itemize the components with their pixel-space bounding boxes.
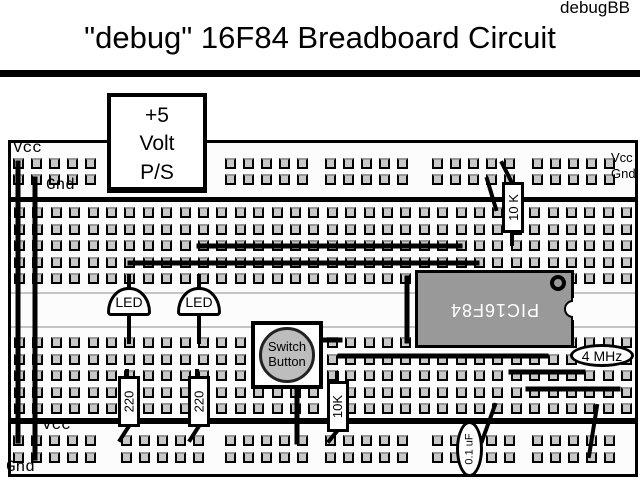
breadboard-hole bbox=[382, 354, 393, 365]
breadboard-hole bbox=[327, 257, 338, 268]
breadboard-hole bbox=[400, 240, 411, 251]
breadboard-hole bbox=[272, 240, 283, 251]
breadboard-hole bbox=[85, 435, 96, 446]
breadboard-hole bbox=[225, 174, 236, 185]
breadboard-hole bbox=[504, 452, 515, 463]
breadboard-hole bbox=[400, 207, 411, 218]
breadboard-hole bbox=[419, 224, 430, 235]
breadboard-hole bbox=[143, 354, 154, 365]
breadboard-hole bbox=[51, 337, 62, 348]
power-supply-box: +5 Volt P/S bbox=[107, 93, 207, 193]
breadboard-hole bbox=[139, 452, 150, 463]
gnd-label-top-left: Gnd bbox=[46, 176, 75, 194]
led-right-label: LED bbox=[185, 294, 212, 310]
breadboard-hole bbox=[14, 337, 25, 348]
breadboard-hole bbox=[397, 435, 408, 446]
breadboard-hole bbox=[364, 224, 375, 235]
breadboard-hole bbox=[69, 240, 80, 251]
breadboard-hole bbox=[548, 224, 559, 235]
breadboard-hole bbox=[382, 370, 393, 381]
breadboard-hole bbox=[345, 337, 356, 348]
breadboard-hole bbox=[548, 207, 559, 218]
breadboard-hole bbox=[51, 224, 62, 235]
breadboard-hole bbox=[343, 435, 354, 446]
breadboard-hole bbox=[235, 207, 246, 218]
corner-label: debugBB bbox=[560, 0, 630, 18]
page: debugBB "debug" 16F84 Breadboard Circuit… bbox=[0, 0, 640, 480]
breadboard-hole bbox=[364, 403, 375, 414]
breadboard-hole bbox=[32, 207, 43, 218]
breadboard-hole bbox=[400, 354, 411, 365]
breadboard-hole bbox=[198, 273, 209, 284]
breadboard-hole bbox=[253, 224, 264, 235]
breadboard-hole bbox=[603, 207, 614, 218]
power-supply-label-line2: Volt bbox=[111, 130, 203, 158]
breadboard-hole bbox=[486, 435, 497, 446]
breadboard-hole bbox=[437, 387, 448, 398]
breadboard-hole bbox=[379, 435, 390, 446]
breadboard-hole bbox=[327, 240, 338, 251]
breadboard-hole bbox=[297, 158, 308, 169]
breadboard-hole bbox=[106, 224, 117, 235]
breadboard-hole bbox=[88, 224, 99, 235]
breadboard-hole bbox=[361, 174, 372, 185]
breadboard-hole bbox=[161, 240, 172, 251]
chip-pin1-indicator bbox=[550, 275, 566, 291]
breadboard-hole bbox=[400, 387, 411, 398]
breadboard-hole bbox=[548, 387, 559, 398]
breadboard-hole bbox=[14, 240, 25, 251]
breadboard-hole bbox=[621, 387, 632, 398]
breadboard-hole bbox=[106, 387, 117, 398]
breadboard-hole bbox=[297, 174, 308, 185]
breadboard-hole bbox=[235, 387, 246, 398]
breadboard-hole bbox=[51, 257, 62, 268]
breadboard-hole bbox=[456, 240, 467, 251]
breadboard-hole bbox=[364, 370, 375, 381]
breadboard-hole bbox=[529, 403, 540, 414]
breadboard-hole bbox=[106, 240, 117, 251]
breadboard-hole bbox=[345, 370, 356, 381]
breadboard-hole bbox=[124, 337, 135, 348]
breadboard-hole bbox=[325, 174, 336, 185]
breadboard-hole bbox=[143, 273, 154, 284]
breadboard-hole bbox=[143, 403, 154, 414]
oscillator-4mhz: 4 MHz bbox=[570, 344, 634, 367]
breadboard-hole bbox=[216, 257, 227, 268]
breadboard-hole bbox=[261, 435, 272, 446]
breadboard-hole bbox=[279, 158, 290, 169]
breadboard-hole bbox=[180, 240, 191, 251]
breadboard-hole bbox=[529, 257, 540, 268]
breadboard-hole bbox=[584, 387, 595, 398]
breadboard-hole bbox=[14, 354, 25, 365]
breadboard-hole bbox=[272, 207, 283, 218]
breadboard-hole bbox=[550, 435, 561, 446]
breadboard-hole bbox=[51, 403, 62, 414]
breadboard-hole bbox=[161, 337, 172, 348]
resistor-10k-pullup-label: 10 K bbox=[506, 194, 521, 221]
breadboard-hole bbox=[235, 273, 246, 284]
breadboard-hole bbox=[621, 370, 632, 381]
breadboard-hole bbox=[343, 158, 354, 169]
breadboard-hole bbox=[161, 207, 172, 218]
breadboard-hole bbox=[88, 387, 99, 398]
breadboard-hole bbox=[124, 207, 135, 218]
breadboard-hole bbox=[51, 354, 62, 365]
breadboard-hole bbox=[584, 240, 595, 251]
breadboard-hole bbox=[492, 257, 503, 268]
breadboard-hole bbox=[486, 452, 497, 463]
breadboard-hole bbox=[290, 273, 301, 284]
breadboard-hole bbox=[566, 370, 577, 381]
breadboard-hole bbox=[106, 403, 117, 414]
breadboard-hole bbox=[198, 224, 209, 235]
breadboard-hole bbox=[529, 370, 540, 381]
breadboard-hole bbox=[345, 207, 356, 218]
breadboard-hole bbox=[14, 403, 25, 414]
breadboard-hole bbox=[400, 370, 411, 381]
breadboard-hole bbox=[235, 354, 246, 365]
breadboard-hole bbox=[193, 452, 204, 463]
breadboard-hole bbox=[143, 387, 154, 398]
breadboard-hole bbox=[272, 403, 283, 414]
breadboard-hole bbox=[14, 273, 25, 284]
oscillator-label: 4 MHz bbox=[582, 348, 622, 364]
breadboard-hole bbox=[143, 257, 154, 268]
breadboard-hole bbox=[13, 158, 24, 169]
breadboard-hole bbox=[216, 403, 227, 414]
breadboard-hole bbox=[456, 403, 467, 414]
breadboard-hole bbox=[121, 435, 132, 446]
breadboard-hole bbox=[532, 158, 543, 169]
breadboard-hole bbox=[492, 403, 503, 414]
breadboard-hole bbox=[32, 354, 43, 365]
breadboard-hole bbox=[32, 240, 43, 251]
breadboard-hole bbox=[584, 224, 595, 235]
breadboard-hole bbox=[225, 435, 236, 446]
breadboard-hole bbox=[532, 452, 543, 463]
breadboard-hole bbox=[243, 435, 254, 446]
breadboard-hole bbox=[568, 435, 579, 446]
breadboard-hole bbox=[364, 354, 375, 365]
breadboard-hole bbox=[474, 240, 485, 251]
led-left-label: LED bbox=[115, 294, 142, 310]
breadboard-hole bbox=[69, 273, 80, 284]
breadboard-hole bbox=[327, 370, 338, 381]
breadboard-hole bbox=[31, 158, 42, 169]
breadboard-hole bbox=[456, 207, 467, 218]
breadboard-hole bbox=[529, 207, 540, 218]
breadboard-hole bbox=[456, 224, 467, 235]
breadboard-hole bbox=[216, 354, 227, 365]
breadboard-hole bbox=[382, 403, 393, 414]
top-rail-divider bbox=[8, 197, 638, 202]
breadboard-hole bbox=[437, 240, 448, 251]
breadboard-hole bbox=[492, 387, 503, 398]
breadboard-hole bbox=[67, 158, 78, 169]
breadboard-hole bbox=[143, 370, 154, 381]
breadboard-hole bbox=[382, 387, 393, 398]
breadboard-hole bbox=[566, 224, 577, 235]
breadboard-hole bbox=[621, 257, 632, 268]
breadboard-hole bbox=[180, 337, 191, 348]
breadboard-hole bbox=[290, 240, 301, 251]
breadboard-hole bbox=[69, 207, 80, 218]
breadboard-hole bbox=[327, 273, 338, 284]
breadboard-hole bbox=[586, 452, 597, 463]
breadboard-hole bbox=[511, 354, 522, 365]
breadboard-hole bbox=[69, 257, 80, 268]
breadboard-hole bbox=[51, 273, 62, 284]
resistor-10k-switch-label: 10K bbox=[331, 395, 346, 418]
breadboard-hole bbox=[397, 452, 408, 463]
gnd-label-right: Gnd bbox=[611, 166, 636, 181]
breadboard-hole bbox=[85, 452, 96, 463]
breadboard-hole bbox=[532, 174, 543, 185]
switch-button-box: Switch Button bbox=[251, 321, 323, 389]
breadboard-hole bbox=[604, 452, 615, 463]
breadboard-hole bbox=[345, 257, 356, 268]
breadboard-hole bbox=[31, 435, 42, 446]
breadboard-hole bbox=[474, 224, 485, 235]
breadboard-hole bbox=[621, 403, 632, 414]
breadboard-hole bbox=[486, 158, 497, 169]
breadboard-hole bbox=[621, 273, 632, 284]
breadboard-hole bbox=[419, 240, 430, 251]
breadboard-hole bbox=[584, 273, 595, 284]
breadboard-hole bbox=[88, 354, 99, 365]
breadboard-hole bbox=[361, 158, 372, 169]
power-supply-label-line3: P/S bbox=[111, 159, 203, 187]
breadboard-hole bbox=[216, 370, 227, 381]
breadboard-hole bbox=[235, 337, 246, 348]
breadboard-hole bbox=[382, 224, 393, 235]
breadboard-hole bbox=[550, 158, 561, 169]
breadboard-hole bbox=[432, 435, 443, 446]
breadboard-hole bbox=[364, 207, 375, 218]
breadboard-hole bbox=[198, 337, 209, 348]
breadboard-hole bbox=[327, 207, 338, 218]
vcc-label-right: Vcc bbox=[611, 150, 633, 165]
breadboard-hole bbox=[364, 273, 375, 284]
breadboard-hole bbox=[161, 387, 172, 398]
breadboard-hole bbox=[382, 240, 393, 251]
switch-button: Switch Button bbox=[259, 327, 315, 383]
breadboard-hole bbox=[400, 337, 411, 348]
breadboard-hole bbox=[397, 158, 408, 169]
breadboard-hole bbox=[290, 224, 301, 235]
breadboard-hole bbox=[106, 354, 117, 365]
breadboard-hole bbox=[49, 435, 60, 446]
breadboard-hole bbox=[161, 273, 172, 284]
page-title: "debug" 16F84 Breadboard Circuit bbox=[0, 20, 640, 56]
breadboard-hole bbox=[548, 240, 559, 251]
breadboard-hole bbox=[511, 403, 522, 414]
breadboard-hole bbox=[345, 224, 356, 235]
breadboard-hole bbox=[161, 403, 172, 414]
switch-label-line2: Button bbox=[268, 355, 306, 370]
breadboard-hole bbox=[161, 224, 172, 235]
breadboard-hole bbox=[397, 174, 408, 185]
breadboard-hole bbox=[157, 452, 168, 463]
breadboard-hole bbox=[198, 207, 209, 218]
breadboard-hole bbox=[548, 370, 559, 381]
resistor-220-right-label: 220 bbox=[192, 391, 207, 413]
breadboard-hole bbox=[437, 370, 448, 381]
breadboard-hole bbox=[419, 354, 430, 365]
breadboard-hole bbox=[32, 370, 43, 381]
breadboard-hole bbox=[198, 354, 209, 365]
breadboard-hole bbox=[364, 337, 375, 348]
breadboard-hole bbox=[225, 158, 236, 169]
breadboard-hole bbox=[437, 207, 448, 218]
breadboard-hole bbox=[568, 158, 579, 169]
vcc-label-bottom-left: Vcc bbox=[42, 416, 71, 434]
breadboard-hole bbox=[51, 240, 62, 251]
breadboard-hole bbox=[437, 224, 448, 235]
breadboard-hole bbox=[511, 257, 522, 268]
breadboard-hole bbox=[327, 337, 338, 348]
breadboard-hole bbox=[143, 207, 154, 218]
breadboard-hole bbox=[492, 240, 503, 251]
breadboard-hole bbox=[308, 273, 319, 284]
breadboard-hole bbox=[382, 207, 393, 218]
breadboard-hole bbox=[69, 387, 80, 398]
breadboard-hole bbox=[379, 158, 390, 169]
breadboard-hole bbox=[325, 158, 336, 169]
breadboard-hole bbox=[290, 257, 301, 268]
breadboard-hole bbox=[603, 370, 614, 381]
breadboard-hole bbox=[106, 337, 117, 348]
breadboard-hole bbox=[161, 370, 172, 381]
breadboard-hole bbox=[124, 257, 135, 268]
breadboard-hole bbox=[180, 273, 191, 284]
breadboard-hole bbox=[216, 240, 227, 251]
breadboard-hole bbox=[243, 174, 254, 185]
breadboard-hole bbox=[272, 224, 283, 235]
breadboard-hole bbox=[419, 207, 430, 218]
breadboard-hole bbox=[400, 257, 411, 268]
breadboard-hole bbox=[51, 370, 62, 381]
breadboard-hole bbox=[198, 257, 209, 268]
breadboard-hole bbox=[603, 257, 614, 268]
breadboard-hole bbox=[13, 435, 24, 446]
breadboard-hole bbox=[400, 224, 411, 235]
breadboard-hole bbox=[584, 207, 595, 218]
breadboard-hole bbox=[511, 370, 522, 381]
breadboard-hole bbox=[143, 337, 154, 348]
breadboard-hole bbox=[529, 387, 540, 398]
breadboard-hole bbox=[400, 273, 411, 284]
breadboard-hole bbox=[586, 174, 597, 185]
breadboard-hole bbox=[529, 224, 540, 235]
breadboard-hole bbox=[437, 403, 448, 414]
breadboard-hole bbox=[193, 435, 204, 446]
breadboard-hole bbox=[261, 158, 272, 169]
breadboard-hole bbox=[325, 435, 336, 446]
breadboard-hole bbox=[14, 257, 25, 268]
breadboard-hole bbox=[345, 240, 356, 251]
breadboard-hole bbox=[308, 207, 319, 218]
breadboard-hole bbox=[32, 257, 43, 268]
breadboard-hole bbox=[492, 370, 503, 381]
breadboard-hole bbox=[235, 403, 246, 414]
breadboard-hole bbox=[69, 370, 80, 381]
breadboard-hole bbox=[511, 387, 522, 398]
breadboard-hole bbox=[364, 240, 375, 251]
breadboard-hole bbox=[253, 273, 264, 284]
resistor-220-left-label: 220 bbox=[122, 391, 137, 413]
breadboard-hole bbox=[492, 354, 503, 365]
breadboard-hole bbox=[143, 224, 154, 235]
breadboard-hole bbox=[32, 224, 43, 235]
breadboard-hole bbox=[253, 403, 264, 414]
breadboard-hole bbox=[550, 452, 561, 463]
breadboard-hole bbox=[235, 257, 246, 268]
breadboard-hole bbox=[550, 174, 561, 185]
breadboard-hole bbox=[419, 387, 430, 398]
breadboard-hole bbox=[14, 207, 25, 218]
breadboard-hole bbox=[272, 273, 283, 284]
breadboard-hole bbox=[621, 207, 632, 218]
breadboard-hole bbox=[474, 257, 485, 268]
breadboard-hole bbox=[437, 257, 448, 268]
breadboard-hole bbox=[603, 403, 614, 414]
breadboard-hole bbox=[603, 387, 614, 398]
breadboard-hole bbox=[621, 240, 632, 251]
breadboard-hole bbox=[474, 207, 485, 218]
breadboard-hole bbox=[456, 354, 467, 365]
breadboard-hole bbox=[161, 354, 172, 365]
breadboard-hole bbox=[235, 370, 246, 381]
breadboard-hole bbox=[345, 273, 356, 284]
title-rule bbox=[0, 70, 640, 77]
breadboard-hole bbox=[532, 435, 543, 446]
breadboard-hole bbox=[88, 257, 99, 268]
breadboard-hole bbox=[106, 273, 117, 284]
breadboard-hole bbox=[279, 174, 290, 185]
breadboard-hole bbox=[603, 273, 614, 284]
breadboard-hole bbox=[325, 452, 336, 463]
bottom-rail-divider bbox=[8, 418, 638, 424]
breadboard-hole bbox=[106, 257, 117, 268]
breadboard-hole bbox=[297, 452, 308, 463]
breadboard-hole bbox=[308, 224, 319, 235]
breadboard-hole bbox=[603, 240, 614, 251]
breadboard-hole bbox=[586, 435, 597, 446]
breadboard-hole bbox=[437, 354, 448, 365]
breadboard-hole bbox=[468, 174, 479, 185]
breadboard-hole bbox=[566, 403, 577, 414]
breadboard-hole bbox=[14, 370, 25, 381]
breadboard-hole bbox=[361, 452, 372, 463]
breadboard-hole bbox=[124, 224, 135, 235]
breadboard-hole bbox=[548, 354, 559, 365]
breadboard-hole bbox=[32, 387, 43, 398]
breadboard-hole bbox=[568, 452, 579, 463]
breadboard-hole bbox=[566, 240, 577, 251]
breadboard-hole bbox=[511, 240, 522, 251]
breadboard-hole bbox=[175, 435, 186, 446]
breadboard-hole bbox=[584, 403, 595, 414]
breadboard-hole bbox=[432, 452, 443, 463]
breadboard-hole bbox=[32, 273, 43, 284]
breadboard-hole bbox=[88, 273, 99, 284]
breadboard-hole bbox=[69, 337, 80, 348]
breadboard-hole bbox=[14, 224, 25, 235]
breadboard-hole bbox=[584, 257, 595, 268]
